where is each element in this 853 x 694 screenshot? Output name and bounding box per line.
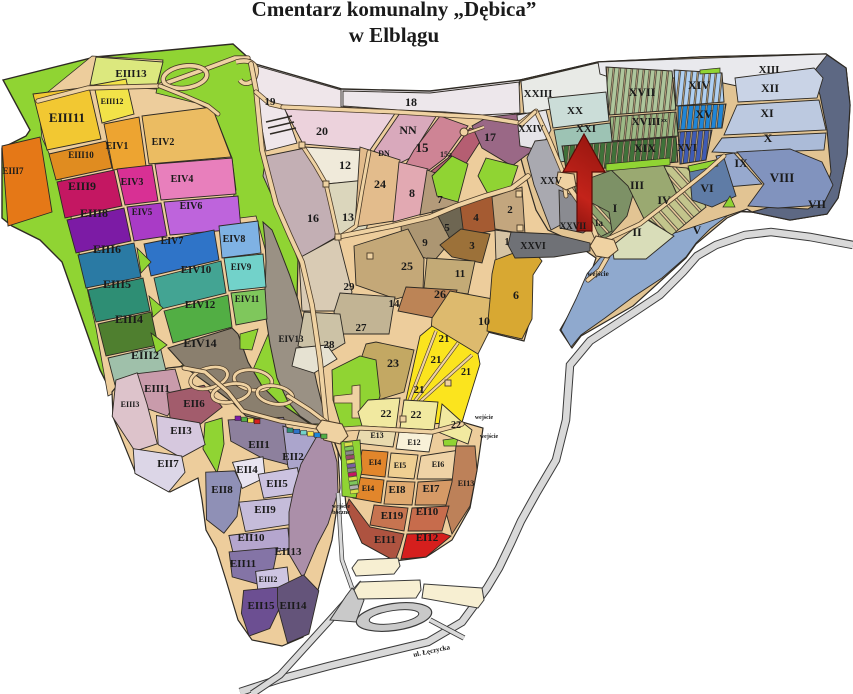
- svg-text:wejście: wejście: [587, 270, 608, 278]
- svg-text:21: 21: [431, 354, 442, 366]
- svg-text:25: 25: [401, 259, 413, 273]
- svg-text:28: 28: [324, 339, 336, 351]
- svg-text:EIII12: EIII12: [101, 97, 124, 106]
- svg-text:13: 13: [342, 210, 354, 224]
- svg-text:18: 18: [405, 95, 417, 109]
- svg-text:EIV6: EIV6: [180, 201, 203, 212]
- svg-text:E13: E13: [370, 431, 383, 440]
- svg-text:4: 4: [473, 212, 479, 224]
- svg-text:EI10: EI10: [416, 506, 439, 518]
- svg-text:EIV11: EIV11: [235, 294, 260, 304]
- svg-text:XVIII: XVIII: [632, 116, 661, 128]
- svg-text:EIV8: EIV8: [223, 234, 246, 245]
- svg-text:EII13: EII13: [275, 546, 302, 558]
- svg-text:XXVI: XXVI: [520, 241, 546, 252]
- svg-text:XVI: XVI: [677, 142, 697, 154]
- svg-text:EI8: EI8: [388, 484, 406, 496]
- svg-text:29: 29: [344, 281, 356, 293]
- svg-text:XX: XX: [567, 105, 583, 117]
- svg-text:EII4: EII4: [236, 464, 258, 476]
- svg-text:DN: DN: [378, 149, 390, 158]
- svg-text:XXV: XXV: [540, 176, 562, 187]
- svg-text:III: III: [630, 178, 644, 192]
- svg-text:2: 2: [507, 204, 513, 216]
- svg-text:EIII11: EIII11: [49, 110, 85, 125]
- svg-text:21: 21: [414, 384, 425, 396]
- svg-text:EI5: EI5: [394, 461, 406, 470]
- svg-text:EIV2: EIV2: [152, 137, 175, 148]
- svg-text:EII6: EII6: [183, 398, 205, 410]
- svg-text:EIII2: EIII2: [131, 348, 159, 362]
- svg-text:EIV13: EIV13: [278, 334, 304, 344]
- svg-text:EIII1: EIII1: [144, 383, 170, 395]
- svg-text:NN: NN: [399, 123, 417, 137]
- svg-text:22: 22: [451, 420, 461, 431]
- svg-text:XXIII: XXIII: [524, 88, 553, 100]
- svg-text:w Elblągu: w Elblągu: [349, 23, 440, 47]
- svg-text:wejście: wejście: [475, 415, 494, 421]
- svg-text:EI13: EI13: [458, 479, 474, 488]
- svg-text:8: 8: [409, 186, 415, 200]
- svg-text:23: 23: [387, 356, 399, 370]
- svg-text:15: 15: [416, 140, 430, 155]
- svg-text:19: 19: [265, 96, 277, 108]
- svg-text:EIII13: EIII13: [115, 68, 147, 80]
- svg-text:X: X: [764, 131, 773, 145]
- svg-text:VII: VII: [808, 197, 826, 211]
- svg-text:boczne: boczne: [332, 510, 350, 516]
- svg-text:EIV10: EIV10: [181, 264, 212, 276]
- svg-text:22: 22: [411, 409, 423, 421]
- svg-text:EIV9: EIV9: [231, 262, 252, 272]
- svg-text:1: 1: [505, 237, 510, 248]
- svg-text:xx: xx: [661, 118, 667, 124]
- svg-text:EIV5: EIV5: [132, 207, 153, 217]
- svg-text:21: 21: [439, 333, 450, 345]
- svg-text:EIV4: EIV4: [171, 174, 194, 185]
- svg-text:EII2: EII2: [282, 451, 304, 463]
- svg-text:14: 14: [389, 298, 401, 310]
- svg-text:EIII5: EIII5: [103, 277, 131, 291]
- svg-text:27: 27: [356, 322, 368, 334]
- svg-text:EIII9: EIII9: [68, 179, 96, 193]
- svg-text:EII11: EII11: [230, 558, 256, 570]
- svg-text:EII5: EII5: [266, 478, 288, 490]
- svg-text:EIV14: EIV14: [183, 336, 216, 350]
- svg-text:26: 26: [434, 287, 446, 301]
- svg-text:12: 12: [339, 158, 351, 172]
- svg-text:EII9: EII9: [254, 504, 276, 516]
- svg-text:XIII: XIII: [759, 64, 780, 76]
- svg-text:EII8: EII8: [211, 484, 233, 496]
- svg-text:EIII7: EIII7: [2, 166, 24, 176]
- svg-text:wejście: wejście: [480, 434, 499, 440]
- svg-text:EII14: EII14: [280, 600, 307, 612]
- svg-text:22: 22: [381, 408, 393, 420]
- svg-text:XIX: XIX: [634, 141, 656, 155]
- svg-text:EII10: EII10: [238, 532, 265, 544]
- svg-text:15a: 15a: [440, 150, 452, 159]
- svg-text:EI19: EI19: [381, 510, 404, 522]
- svg-text:EIII10: EIII10: [68, 150, 94, 160]
- svg-text:EI11: EI11: [374, 534, 396, 546]
- svg-text:EII15: EII15: [248, 600, 275, 612]
- svg-text:21: 21: [461, 367, 471, 378]
- svg-text:9: 9: [422, 237, 428, 249]
- svg-text:5: 5: [444, 222, 450, 234]
- svg-text:6: 6: [513, 288, 519, 302]
- svg-text:EIV7: EIV7: [161, 236, 184, 247]
- svg-text:EII1: EII1: [248, 439, 269, 451]
- svg-text:3: 3: [469, 240, 475, 252]
- svg-text:XII: XII: [761, 81, 779, 95]
- svg-text:EIII8: EIII8: [80, 206, 108, 220]
- svg-text:EII7: EII7: [157, 458, 179, 470]
- svg-text:I: I: [613, 201, 618, 215]
- svg-text:XXI: XXI: [576, 123, 596, 135]
- svg-text:EIII2: EIII2: [259, 575, 278, 584]
- svg-text:VIII: VIII: [770, 170, 795, 185]
- svg-text:EIII6: EIII6: [93, 242, 121, 256]
- svg-text:EI7: EI7: [422, 483, 440, 495]
- svg-text:11: 11: [455, 268, 465, 280]
- svg-text:XIV: XIV: [688, 78, 710, 92]
- svg-text:V: V: [693, 223, 702, 237]
- svg-text:EIII4: EIII4: [115, 312, 143, 326]
- svg-text:24: 24: [374, 177, 386, 191]
- svg-text:EIV1: EIV1: [106, 141, 129, 152]
- svg-text:Ia: Ia: [595, 218, 604, 228]
- svg-text:E12: E12: [407, 438, 420, 447]
- svg-text:EI4: EI4: [369, 458, 381, 467]
- svg-text:EI6: EI6: [432, 460, 444, 469]
- svg-text:XI: XI: [760, 106, 774, 120]
- svg-text:16: 16: [307, 211, 319, 225]
- svg-text:EI4: EI4: [362, 484, 374, 493]
- svg-text:20: 20: [316, 124, 328, 138]
- svg-text:XVII: XVII: [629, 85, 656, 99]
- svg-text:EIII3: EIII3: [121, 400, 140, 409]
- svg-text:XXVII: XXVII: [560, 221, 587, 231]
- svg-text:II: II: [632, 225, 642, 239]
- svg-text:EIV3: EIV3: [121, 177, 144, 188]
- svg-text:EI12: EI12: [416, 532, 439, 544]
- svg-text:Cmentarz komunalny „Dębica”: Cmentarz komunalny „Dębica”: [252, 0, 537, 21]
- svg-text:VI: VI: [700, 181, 714, 195]
- svg-text:EIV12: EIV12: [185, 299, 216, 311]
- svg-text:EII3: EII3: [170, 425, 192, 437]
- svg-text:10: 10: [478, 314, 490, 328]
- svg-text:IV: IV: [657, 193, 671, 207]
- svg-text:17: 17: [484, 130, 496, 144]
- svg-text:XV: XV: [695, 107, 713, 121]
- svg-text:IX: IX: [734, 156, 748, 170]
- svg-text:7: 7: [437, 194, 443, 206]
- svg-text:XXIV: XXIV: [518, 124, 544, 135]
